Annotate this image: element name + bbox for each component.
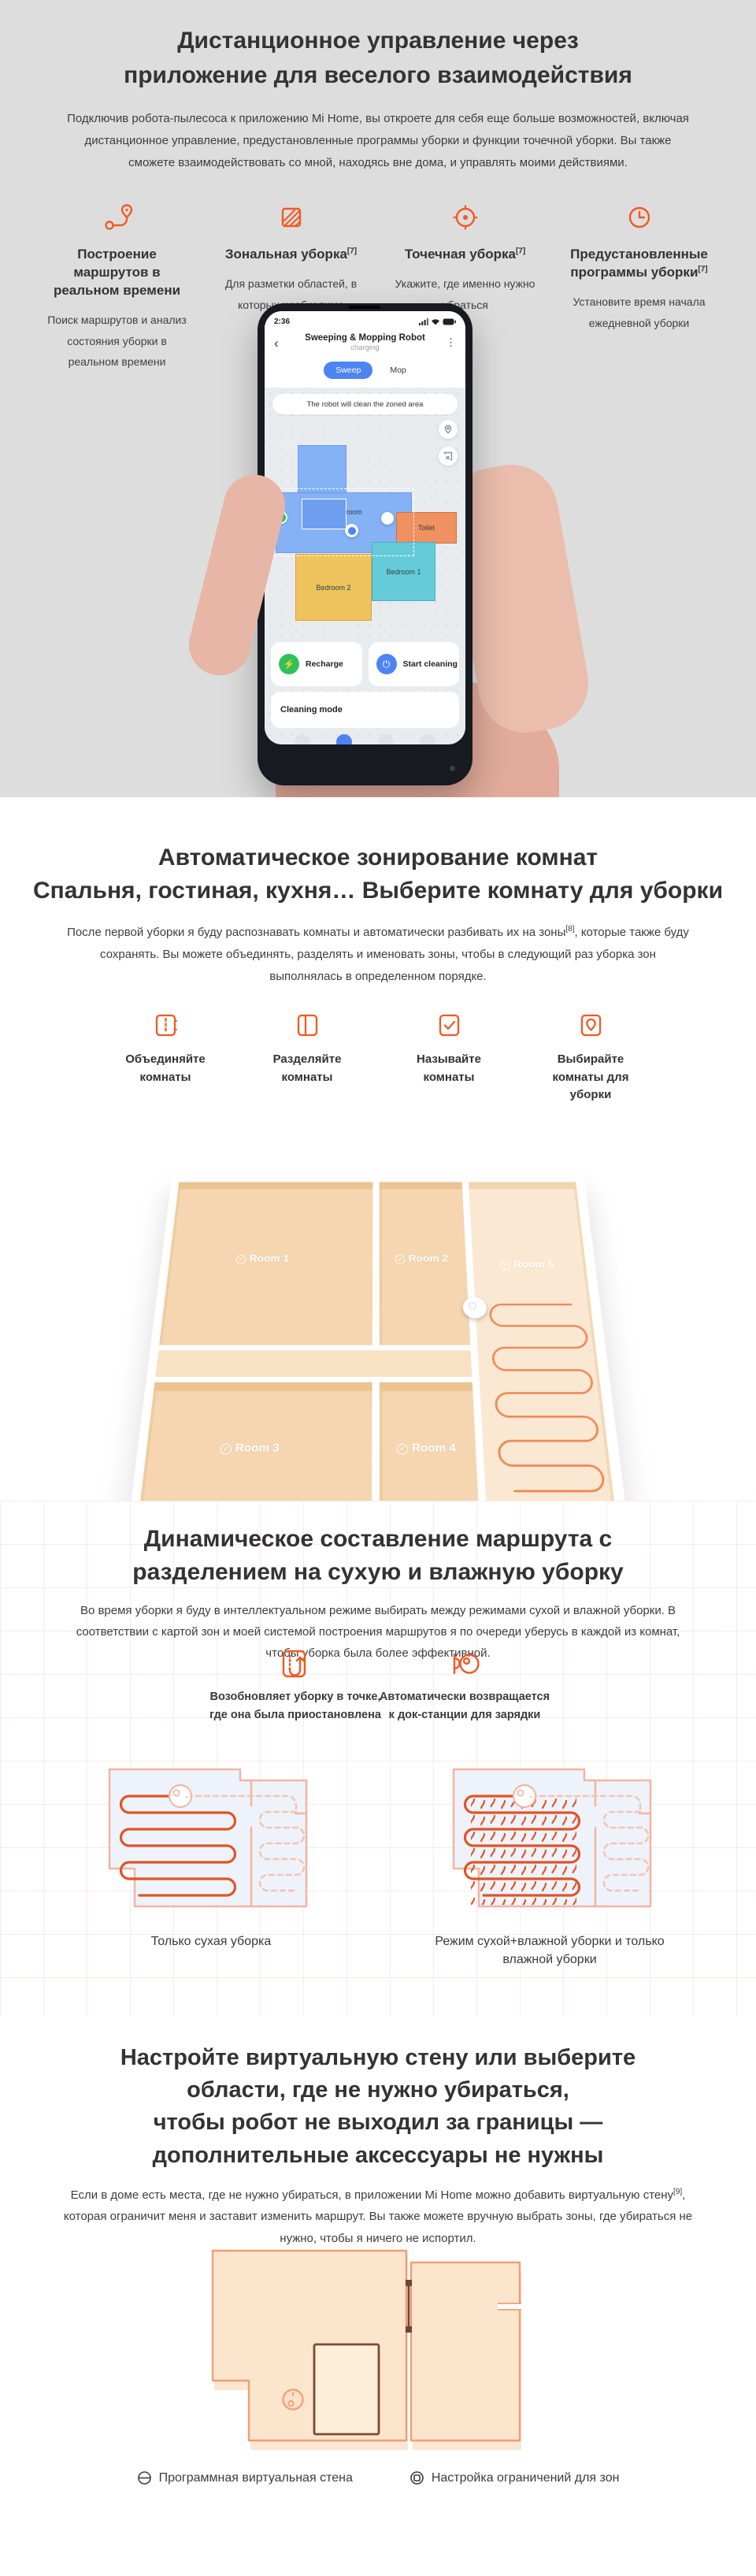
title-line: разделением на сухую и влажную уборку (0, 1556, 756, 1589)
footnote-ref: [7] (516, 247, 525, 256)
wifi-icon (431, 318, 440, 325)
cleaning-mode-label: Cleaning mode (280, 705, 343, 715)
right-room (411, 2262, 520, 2441)
water-drip-marks (471, 1796, 576, 1905)
floorplan-surface: ✓Room 1 ✓Room 2 ✓Room 5 ✓Room 3 ✓Room 4 (126, 1175, 630, 1540)
action-label: Объединяйте комнаты (106, 1051, 224, 1086)
feature-realtime-routes: Построение маршрутов в реальном времени … (30, 202, 204, 373)
action-split-rooms: Разделяйте комнаты (236, 1011, 378, 1104)
check-circle-icon: ✓ (397, 1443, 408, 1454)
virtual-wall-endpoint (406, 2326, 412, 2333)
floorplan-3d: ✓Room 1 ✓Room 2 ✓Room 5 ✓Room 3 ✓Room 4 (118, 1131, 638, 1501)
title-line: области, где не нужно убираться, (0, 2074, 756, 2106)
title-line: Дистанционное управление через (0, 24, 756, 58)
check-circle-icon: ✓ (220, 1443, 232, 1454)
start-cleaning-label: Start cleaning (403, 659, 458, 669)
diagram-caption-wet: Режим сухой+влажной уборки и только влаж… (432, 1932, 668, 1969)
recharge-button[interactable]: ⚡ Recharge (271, 642, 362, 686)
section-dynamic-route: Динамическое составление маршрута с разд… (0, 1501, 756, 2017)
section1-description: Подключив робота-пылесоса к приложению M… (63, 108, 693, 173)
virtual-wall-icon (137, 2470, 152, 2485)
section2-description: После первой уборки я буду распознавать … (67, 922, 689, 987)
mode-option[interactable] (378, 734, 394, 744)
feature-scheduled-cleanup: Предустановленные программы уборки[7] Ус… (552, 202, 726, 373)
pin-map-button[interactable] (439, 420, 458, 439)
feature-title: Предустановленные программы уборки (570, 247, 708, 280)
name-rooms-icon (435, 1011, 464, 1040)
phone-mockup: 2:36 ‹ Sweeping & Mopping Robot charging (258, 303, 472, 785)
section2-title: Автоматическое зонирование комнат Спальн… (0, 797, 756, 908)
robot-icon (513, 1785, 535, 1807)
signal-icon (419, 318, 428, 325)
tab-mop[interactable]: Mop (390, 366, 406, 375)
plan-room-label: ✓Room 1 (235, 1254, 290, 1264)
action-label: Называйте комнаты (390, 1051, 508, 1086)
section-remote-control: Дистанционное управление через приложени… (0, 0, 756, 797)
phone-screen: 2:36 ‹ Sweeping & Mopping Robot charging (265, 311, 465, 744)
select-rooms-icon (576, 1011, 606, 1040)
route-icon (102, 202, 133, 233)
start-cleaning-button[interactable]: ⏻ Start cleaning (369, 642, 460, 686)
cleaning-path (482, 1296, 613, 1525)
app-titles: Sweeping & Mopping Robot charging (290, 333, 440, 352)
back-button[interactable]: ‹ (274, 336, 290, 350)
title-line: Настройте виртуальную стену или выберите (0, 2042, 756, 2074)
legend-zone-restriction: Настройка ограничений для зон (409, 2470, 620, 2485)
section4-description: Если в доме есть места, где не нужно уби… (63, 2184, 693, 2250)
legend: Программная виртуальная стена Настройка … (0, 2470, 756, 2485)
title-line: приложение для веселого взаимодействия (0, 58, 756, 93)
callout-text: Возобновляет уборку в точке, где она был… (209, 1688, 382, 1724)
zone-restriction-icon (409, 2470, 424, 2485)
zone-edit-button[interactable] (439, 447, 458, 466)
app-header-area: 2:36 ‹ Sweeping & Mopping Robot charging (265, 311, 465, 388)
zone-resize-handle[interactable] (381, 512, 394, 525)
section-room-zoning: Автоматическое зонирование комнат Спальн… (0, 797, 756, 1501)
footnote-ref: [9] (673, 2188, 682, 2196)
feature-title: Точечная уборка (405, 247, 516, 262)
robot-icon (169, 1785, 191, 1807)
zoning-actions-row: Объединяйте комнаты Разделяйте комнаты Н… (94, 1011, 661, 1104)
robot-position-icon (345, 524, 358, 537)
title-line: Автоматическое зонирование комнат (0, 841, 756, 874)
check-circle-icon: ✓ (235, 1255, 246, 1264)
product-page: Дистанционное управление через приложени… (0, 0, 756, 2576)
wet-cleaning-diagram (449, 1765, 655, 1914)
feature-text: Установите время начала ежедневной уборк… (565, 291, 714, 333)
feature-title: Построение маршрутов в реальном времени (54, 247, 180, 298)
resume-icon (279, 1647, 312, 1680)
virtual-wall-floorplan (211, 2242, 526, 2455)
app-title: Sweeping & Mopping Robot (290, 333, 440, 343)
plan-hallway (155, 1350, 472, 1377)
section4-title: Настройте виртуальную стену или выберите… (0, 2017, 756, 2172)
no-go-zone (314, 2344, 379, 2434)
action-label: Выбирайте комнаты для уборки (532, 1051, 650, 1104)
callout-text: Автоматически возвращается к док-станции… (378, 1688, 551, 1724)
split-rooms-icon (293, 1011, 322, 1040)
status-time: 2:36 (274, 317, 290, 326)
cleaning-mode-card[interactable]: Cleaning mode (271, 692, 459, 728)
battery-icon (443, 318, 456, 325)
mode-option[interactable] (420, 734, 435, 744)
mode-option[interactable] (295, 734, 310, 744)
spot-icon (450, 202, 481, 233)
check-circle-icon: ✓ (395, 1255, 405, 1264)
legend-label: Настройка ограничений для зон (432, 2471, 620, 2485)
callout-dock-return: Автоматически возвращается к док-станции… (378, 1647, 551, 1724)
plan-room-5 (469, 1182, 618, 1531)
zone-select-icon (443, 451, 453, 461)
recharge-icon: ⚡ (279, 654, 299, 674)
section1-title: Дистанционное управление через приложени… (0, 0, 756, 92)
control-row: ⚡ Recharge ⏻ Start cleaning (271, 642, 459, 686)
room-bedroom2[interactable]: Bedroom 2 (295, 554, 372, 621)
zone-icon (276, 202, 307, 233)
more-menu-icon[interactable]: ⋮ (440, 336, 456, 349)
footnote-ref: [7] (347, 247, 357, 256)
title-line: дополнительные аксессуары не нужны (0, 2140, 756, 2172)
door-gap (498, 2303, 521, 2310)
action-select-rooms: Выбирайте комнаты для уборки (520, 1011, 661, 1104)
section-virtual-wall: Настройте виртуальную стену или выберите… (0, 2017, 756, 2576)
recharge-label: Recharge (306, 659, 343, 669)
check-circle-icon: ✓ (500, 1260, 511, 1269)
section3-title: Динамическое составление маршрута с разд… (0, 1501, 756, 1589)
legend-label: Программная виртуальная стена (159, 2471, 353, 2485)
legend-virtual-wall: Программная виртуальная стена (137, 2470, 353, 2485)
title-line: Спальня, гостиная, кухня… Выберите комна… (0, 874, 756, 908)
map-banner: The robot will clean the zoned area (272, 394, 458, 414)
tab-sweep[interactable]: Sweep (324, 362, 372, 379)
selected-zone-rect[interactable] (302, 499, 346, 529)
action-name-rooms: Называйте комнаты (378, 1011, 520, 1104)
footnote-ref: [8] (565, 925, 574, 934)
mode-options-row (265, 734, 465, 744)
plan-room-label: ✓Room 3 (220, 1442, 280, 1456)
title-line: чтобы робот не выходил за границы — (0, 2106, 756, 2139)
virtual-wall-endpoint (406, 2280, 412, 2286)
mode-option-selected[interactable] (336, 734, 352, 744)
dock-return-icon (448, 1647, 481, 1680)
power-icon: ⏻ (376, 654, 397, 674)
phone-speaker (349, 306, 380, 309)
app-header: ‹ Sweeping & Mopping Robot charging ⋮ (274, 328, 456, 358)
action-label: Разделяйте комнаты (248, 1051, 366, 1086)
cleaning-map: The robot will clean the zoned area Livi… (265, 388, 465, 744)
feature-title: Зональная уборка (225, 247, 347, 262)
callout-resume: Возобновляет уборку в точке, где она был… (209, 1647, 382, 1724)
diagram-caption-dry: Только сухая уборка (93, 1932, 329, 1951)
feature-text: Поиск маршрутов и анализ состояния уборк… (43, 310, 192, 373)
mode-tabs: Sweep Mop (274, 358, 456, 388)
merge-rooms-icon (151, 1011, 180, 1040)
footnote-ref: [7] (698, 265, 707, 274)
plan-room-label: ✓Room 2 (395, 1254, 448, 1264)
dry-cleaning-diagram (105, 1765, 311, 1914)
status-bar: 2:36 (274, 315, 456, 328)
app-status: charging (290, 343, 440, 352)
map-pin-icon (443, 425, 453, 434)
plan-room-label: ✓Room 5 (500, 1260, 554, 1271)
phone-camera (450, 766, 455, 771)
action-merge-rooms: Объединяйте комнаты (94, 1011, 236, 1104)
plan-room-label: ✓Room 4 (397, 1442, 456, 1456)
status-icons (419, 318, 456, 325)
title-line: Динамическое составление маршрута с (0, 1523, 756, 1556)
clock-icon (624, 202, 655, 233)
